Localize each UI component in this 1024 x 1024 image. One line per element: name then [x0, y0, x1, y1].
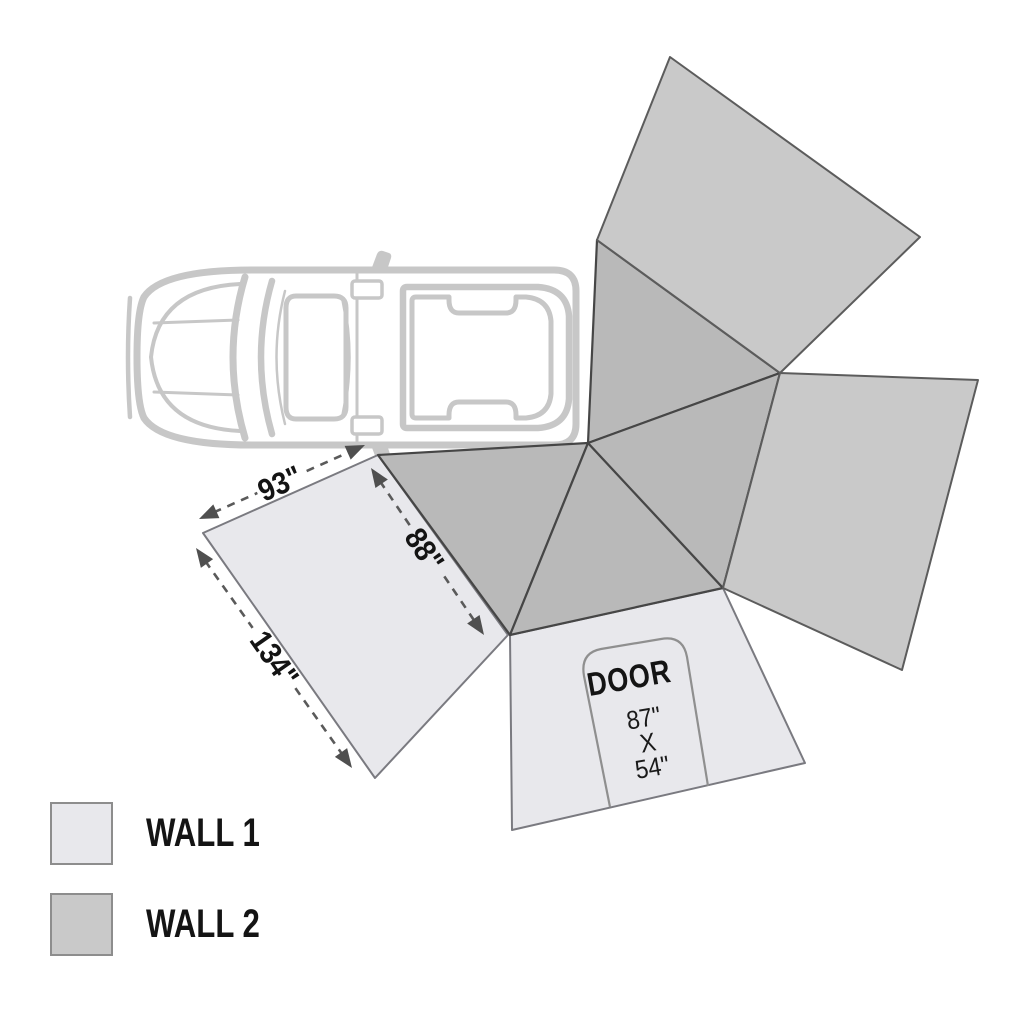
legend-item-wall2: WALL 2 [50, 893, 292, 956]
truck-hood-crease-bottom [154, 392, 238, 395]
truck-cab-roof [286, 296, 346, 419]
truck-cab-corner-bottom [352, 417, 382, 434]
truck-bed-liner [412, 297, 551, 418]
truck-hood-inner-line [151, 284, 240, 431]
legend: WALL 1 WALL 2 [50, 802, 292, 956]
wall1-swatch [50, 802, 113, 865]
truck-top-view-illustration [128, 251, 576, 464]
wall1-label: WALL 1 [146, 811, 260, 856]
wall2-label: WALL 2 [146, 902, 260, 947]
awning-layout-diagram: 93" 134" 88" DOOR 87" X 54" WALL 1 WALL … [0, 0, 1024, 1024]
truck-cab-corner-top [352, 281, 382, 298]
truck-windshield-rear-edge [261, 281, 272, 434]
truck-windshield-front-edge [233, 277, 245, 438]
truck-hood-crease-top [154, 320, 238, 323]
legend-item-wall1: WALL 1 [50, 802, 292, 865]
door-size-width: 54" [633, 752, 671, 783]
truck-front-bumper [128, 298, 130, 417]
wall2-swatch [50, 893, 113, 956]
